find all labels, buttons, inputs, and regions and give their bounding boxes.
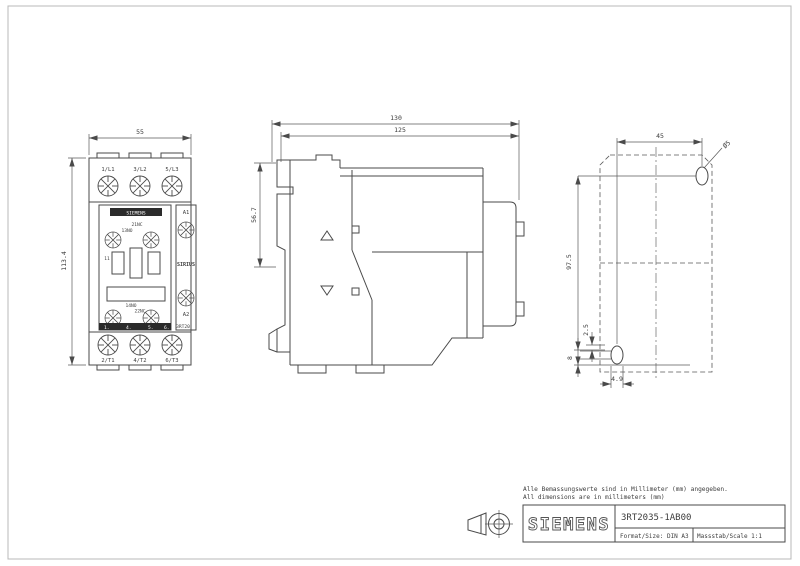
screw-terminal-1L1 — [98, 176, 118, 196]
series-label-sirius: SIRIUS — [177, 262, 195, 268]
dim-125: 125 — [394, 126, 406, 134]
rear-dim-4-9: 4.9 — [600, 366, 634, 388]
dim-55: 55 — [136, 128, 144, 136]
type-label-3rt20: 3RT20 — [176, 324, 190, 330]
front-terminals-top: 1/L1 3/L2 5/L3 — [98, 167, 182, 196]
front-module: SIEMENS 21NC 13NO 11 14NO 22NC 1. 4. 5. … — [99, 205, 196, 331]
front-terminals-bottom: 2/T1 4/T2 6/T3 — [98, 335, 182, 364]
svg-text:8: 8 — [566, 356, 574, 360]
bottom-mark-1: 1. — [104, 325, 110, 331]
bottom-strip — [99, 323, 171, 330]
dim-hole-dia: Ø5 — [721, 139, 732, 150]
rear-dim-45: 45 — [617, 132, 702, 344]
bottom-mark-4: 4. — [126, 325, 132, 331]
aux-label-13no: 13NO — [121, 228, 132, 234]
svg-text:2.5: 2.5 — [582, 324, 590, 336]
screw-terminal-4T2 — [130, 335, 150, 355]
screw-terminal-2T1 — [98, 335, 118, 355]
dim-113-4: 113.4 — [60, 251, 68, 271]
svg-text:45: 45 — [656, 132, 664, 140]
projection-symbol — [468, 510, 513, 538]
terminal-label-5L3: 5/L3 — [165, 167, 178, 173]
brand-strip-label: SIEMENS — [126, 211, 146, 217]
side-body-profile — [290, 155, 524, 373]
title-block: SIEMENS 3RT2035-1AB00 Format/Size: DIN A… — [523, 505, 785, 542]
screw-aux-top-left — [105, 232, 121, 248]
front-height-dimension: 113.4 — [60, 158, 86, 365]
scale-label: Massstab/Scale 1:1 — [697, 533, 762, 540]
pole-mark-11: 11 — [104, 256, 110, 262]
screw-terminal-3L2 — [130, 176, 150, 196]
dim-130: 130 — [390, 114, 402, 122]
projection-cone-icon — [468, 513, 486, 535]
screw-coil-a2 — [178, 290, 194, 306]
front-width-dimension: 55 — [89, 128, 191, 155]
terminal-label-4T2: 4/T2 — [133, 358, 146, 364]
screw-aux-top-right — [143, 232, 159, 248]
din-rail-clip — [269, 160, 293, 352]
side-rail-dimension: 56.7 — [250, 163, 276, 267]
side-view: 130 125 56.7 — [250, 114, 524, 373]
aux-label-21nc: 21NC — [131, 222, 142, 228]
aux-label-14no: 14NO — [125, 303, 136, 309]
sheet-frame — [8, 6, 791, 559]
rear-dim-8: 8 — [566, 338, 611, 377]
format-label: Format/Size: DIN A3 — [620, 533, 689, 540]
drawing-sheet: 55 113.4 1/L1 3/L2 5/L3 — [0, 0, 800, 566]
bottom-mark-6: 6. — [164, 325, 170, 331]
screw-terminal-5L3 — [162, 176, 182, 196]
coil-label-a1: A1 — [183, 210, 190, 216]
rear-view: Ø5 45 97.5 2.5 8 — [565, 132, 732, 388]
front-view: 55 113.4 1/L1 3/L2 5/L3 — [60, 128, 196, 370]
svg-text:4.9: 4.9 — [611, 375, 623, 383]
mounting-hole-top — [696, 167, 708, 185]
coil-label-a2: A2 — [183, 312, 190, 318]
note-line-en: All dimensions are in millimeters (mm) — [523, 494, 665, 501]
terminal-label-3L2: 3/L2 — [133, 167, 146, 173]
siemens-logo: SIEMENS — [528, 515, 610, 535]
svg-text:97.5: 97.5 — [565, 254, 573, 270]
terminal-label-2T1: 2/T1 — [101, 358, 114, 364]
notes: Alle Bemassungswerte sind in Millimeter … — [523, 486, 728, 501]
terminal-label-6T3: 6/T3 — [165, 358, 178, 364]
indicator-triangle-down — [321, 286, 333, 295]
dim-56-7: 56.7 — [250, 207, 258, 223]
bottom-mark-5: 5. — [148, 325, 154, 331]
indicator-triangle-up — [321, 231, 333, 240]
mounting-hole-bottom — [611, 346, 623, 364]
screw-coil-a1 — [178, 222, 194, 238]
drawing-canvas: 55 113.4 1/L1 3/L2 5/L3 — [0, 0, 800, 566]
side-depth-dimensions: 130 125 — [272, 114, 519, 200]
product-code: 3RT2035-1AB00 — [621, 513, 691, 523]
terminal-label-1L1: 1/L1 — [101, 167, 114, 173]
screw-terminal-6T3 — [162, 335, 182, 355]
note-line-de: Alle Bemassungswerte sind in Millimeter … — [523, 486, 728, 493]
